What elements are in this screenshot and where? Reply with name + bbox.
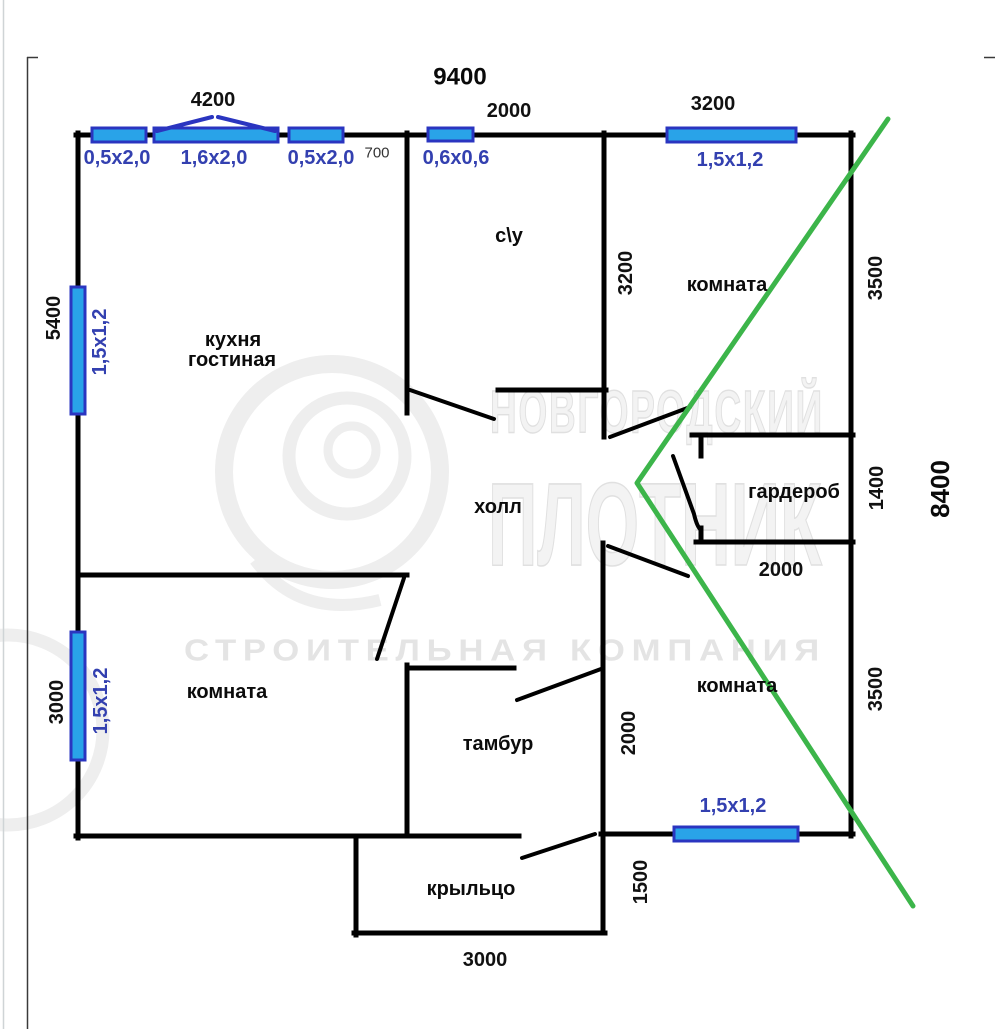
dim-right-3500-top: 3500 [865, 256, 887, 301]
room-label-bathroom: c\y [495, 225, 524, 247]
window-bathroom [428, 128, 473, 141]
dim-left-5400: 5400 [43, 296, 65, 341]
dim-overall-height: 8400 [925, 460, 955, 518]
dim-top-4200: 4200 [191, 89, 236, 111]
watermark-swirl-left [0, 635, 103, 825]
window-top-bay [154, 128, 278, 142]
window-label-room-bottom: 1,5x1,2 [700, 795, 767, 817]
dim-right-3500-bottom: 3500 [865, 667, 887, 712]
room-label-room-top-right: комната [687, 274, 768, 296]
room-label-room-bottom-right: комната [697, 675, 778, 697]
watermark-swirl-mid [289, 398, 405, 514]
window-label-left-lower: 1,5x1,2 [90, 668, 112, 735]
dim-top-2000: 2000 [487, 100, 532, 122]
door-tambour [517, 669, 601, 700]
room-label-kitchen-line2: гостиная [188, 349, 276, 371]
dim-inner-3200: 3200 [615, 251, 637, 296]
dim-left-3000: 3000 [46, 680, 68, 725]
dim-bottom-3000: 3000 [463, 949, 508, 971]
dim-right-1400: 1400 [866, 466, 888, 511]
room-label-hall: холл [474, 496, 522, 518]
window-room-top [667, 128, 796, 142]
room-label-room-bottom-left: комната [187, 681, 268, 703]
room-label-kitchen-line1: кухня [205, 329, 261, 351]
window-label-room-top: 1,5x1,2 [697, 149, 764, 171]
window-top-left-small [92, 128, 146, 142]
room-label-porch: крыльцо [427, 878, 516, 900]
door-entrance [522, 834, 595, 858]
dim-wardrobe-2000: 2000 [759, 559, 804, 581]
dim-top-3200: 3200 [691, 93, 736, 115]
window-label-bathroom: 0,6x0,6 [423, 147, 490, 169]
window-label-bay: 1,6x2,0 [181, 147, 248, 169]
watermark-swirl-inner [328, 426, 376, 474]
floor-plan-page: НОВГОРОДСКИЙ ПЛОТНИК СТРОИТЕЛЬНАЯ КОМПАН… [0, 0, 995, 1029]
window-label-left-upper: 1,5x1,2 [89, 309, 111, 376]
dim-bottom-1500: 1500 [630, 860, 652, 905]
dim-overall-width: 9400 [433, 64, 486, 91]
window-left-upper [71, 287, 85, 414]
floor-plan-canvas: НОВГОРОДСКИЙ ПЛОТНИК СТРОИТЕЛЬНАЯ КОМПАН… [0, 0, 995, 1029]
dim-wall-700: 700 [364, 145, 389, 162]
watermark-brand-line3: СТРОИТЕЛЬНАЯ КОМПАНИЯ [184, 633, 826, 668]
window-top-right-small [289, 128, 343, 142]
dim-tambour-2000: 2000 [618, 711, 640, 756]
window-left-lower [71, 632, 85, 760]
window-room-bottom [674, 827, 798, 841]
room-label-tambour: тамбур [463, 733, 534, 755]
window-label-top-left: 0,5x2,0 [84, 147, 151, 169]
window-label-top-right-small: 0,5x2,0 [288, 147, 355, 169]
room-label-wardrobe: гардероб [748, 481, 840, 503]
